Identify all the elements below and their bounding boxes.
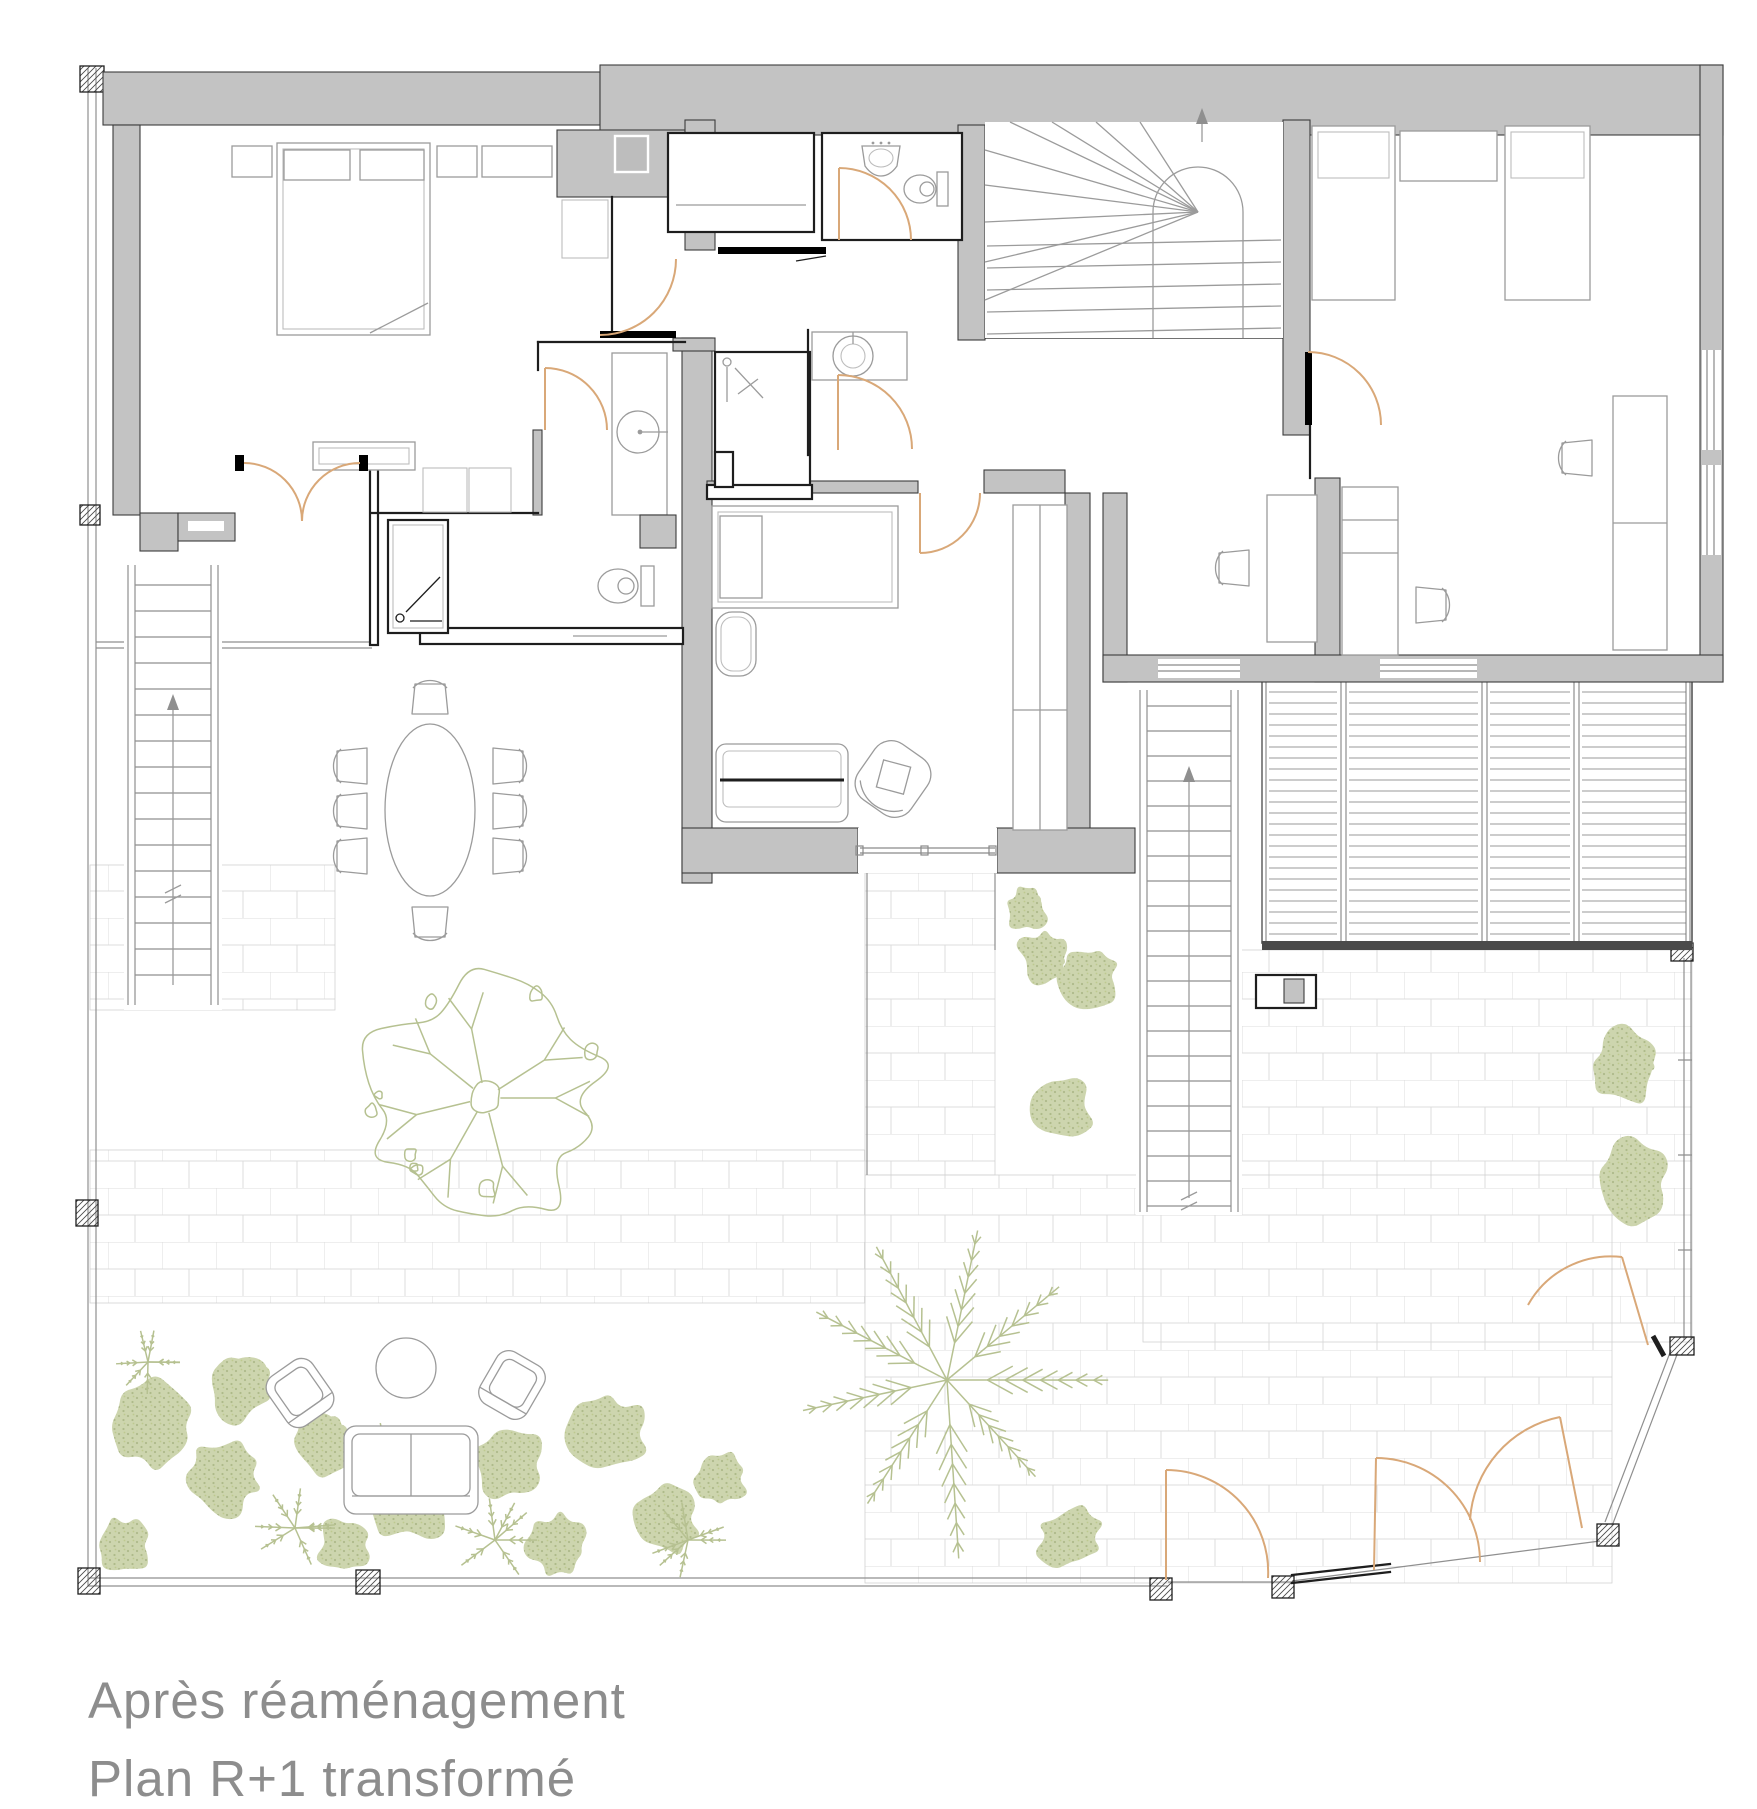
closet-unit bbox=[423, 468, 467, 512]
toilet-icon bbox=[904, 172, 948, 206]
right-bedroom bbox=[1312, 126, 1667, 655]
shrub-icon bbox=[564, 1395, 646, 1468]
shower-corner bbox=[388, 520, 448, 633]
pillow bbox=[360, 150, 424, 180]
wall-kids-south-a bbox=[682, 828, 858, 873]
shrub-icon bbox=[633, 1483, 700, 1554]
post-bottom-3 bbox=[1272, 1576, 1294, 1598]
caption: Après réaménagement Plan R+1 transformé bbox=[88, 1672, 626, 1807]
door-shower-room bbox=[838, 375, 912, 450]
post-bottom-right bbox=[1597, 1524, 1619, 1546]
basin-counter bbox=[812, 332, 907, 380]
shrub-icon bbox=[112, 1376, 191, 1470]
shrub-icon bbox=[524, 1512, 587, 1576]
wardrobe bbox=[482, 146, 552, 177]
wardrobe bbox=[562, 200, 608, 258]
stair-right bbox=[1136, 688, 1242, 1215]
post-top-left bbox=[80, 66, 104, 92]
kids-sofa bbox=[716, 744, 848, 822]
master-bathroom bbox=[388, 353, 676, 633]
bassinet bbox=[716, 612, 756, 676]
dining-set bbox=[333, 680, 526, 940]
sofa bbox=[344, 1426, 478, 1514]
stair-winder bbox=[985, 108, 1283, 338]
deck-landing-post bbox=[1284, 979, 1304, 1003]
tree-icon bbox=[1030, 1078, 1093, 1136]
wall-kids-right bbox=[1065, 493, 1090, 833]
desk bbox=[1267, 495, 1317, 642]
post-right-mid bbox=[1670, 1337, 1694, 1355]
door-master-bath bbox=[545, 368, 607, 430]
shrub-icon bbox=[474, 1430, 542, 1499]
french-doors bbox=[235, 455, 368, 521]
caption-line-2: Plan R+1 transformé bbox=[88, 1750, 576, 1807]
fern-icon bbox=[116, 1331, 180, 1394]
single-bed bbox=[1505, 126, 1590, 300]
closet-unit bbox=[469, 468, 511, 512]
shrub-icon bbox=[186, 1440, 260, 1519]
post-left-lower bbox=[76, 1200, 98, 1226]
nightstand bbox=[232, 146, 272, 177]
floor-plan-canvas: Après réaménagement Plan R+1 transformé bbox=[0, 0, 1757, 1809]
single-bed bbox=[1312, 126, 1395, 300]
shrub-icon bbox=[99, 1518, 148, 1570]
wall-bedroom-left bbox=[113, 125, 140, 515]
nightstand bbox=[437, 146, 477, 177]
stair-left bbox=[124, 560, 222, 1010]
door-kids-room bbox=[920, 493, 980, 553]
paver-band-mid-left bbox=[90, 1150, 865, 1303]
shrub-icon bbox=[693, 1452, 747, 1504]
hall-desk-nook bbox=[1215, 495, 1317, 642]
swivel-armchair bbox=[847, 733, 938, 825]
master-bedroom bbox=[232, 143, 608, 512]
pillow bbox=[720, 516, 762, 598]
coffee-table bbox=[376, 1338, 436, 1398]
tree-icon bbox=[1007, 887, 1048, 929]
closet-room bbox=[668, 133, 814, 232]
deck-edge-beam bbox=[1262, 941, 1692, 950]
post-left-mid bbox=[80, 505, 100, 525]
pillow bbox=[284, 150, 350, 180]
wall-kids-south-b bbox=[997, 828, 1135, 873]
wall-top-band-left bbox=[103, 72, 600, 125]
door-right-bedroom bbox=[1305, 352, 1381, 425]
sliding-door-corridor bbox=[718, 247, 826, 261]
caption-line-1: Après réaménagement bbox=[88, 1672, 626, 1729]
desk bbox=[1342, 487, 1398, 655]
post-bottom-2 bbox=[1150, 1578, 1172, 1600]
kids-bedroom bbox=[712, 505, 1067, 830]
post-bottom-1 bbox=[356, 1570, 380, 1594]
shelf-unit bbox=[1400, 131, 1497, 181]
post-bottom-left bbox=[78, 1568, 100, 1594]
tree-icon bbox=[1057, 951, 1117, 1009]
toilet-icon bbox=[598, 566, 654, 606]
dining-table bbox=[385, 724, 475, 896]
floor-plan-page: Après réaménagement Plan R+1 transformé bbox=[0, 0, 1757, 1809]
shrub-icon bbox=[212, 1357, 270, 1425]
wall-center-spine bbox=[682, 338, 712, 883]
shaft bbox=[615, 136, 648, 172]
paver-walkway-center bbox=[865, 873, 995, 1175]
